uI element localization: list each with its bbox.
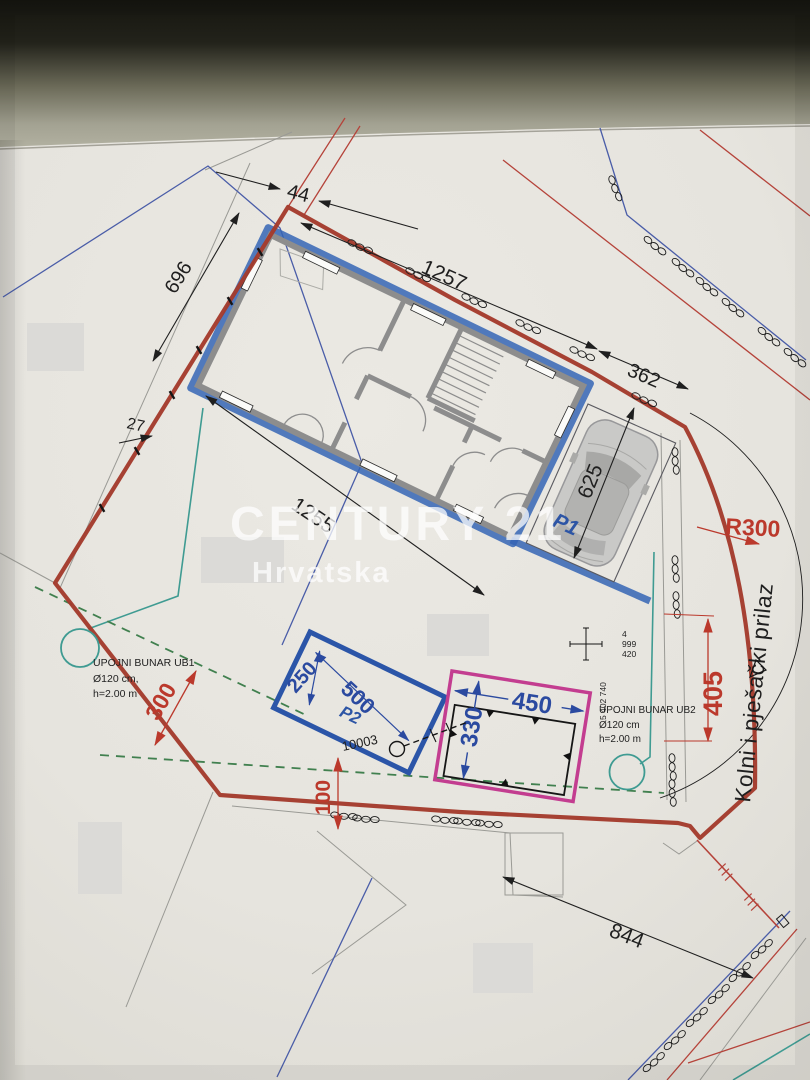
coord-north-2: 999: [622, 639, 636, 649]
dim-r300: R300: [725, 513, 781, 542]
site-plan-photo: 500 250 P2 450 330: [0, 0, 810, 1080]
watermark-region: Hrvatska: [252, 557, 391, 589]
well-ub2-diameter: Ø120 cm: [599, 720, 640, 731]
dim-100: 100: [312, 780, 335, 815]
dim-27: 27: [125, 415, 146, 435]
well-ub1-name: UPOJNI BUNAR UB1: [93, 657, 195, 669]
dim-405: 405: [698, 671, 728, 716]
well-ub2-name: UPOJNI BUNAR UB2: [599, 705, 696, 716]
watermark-brand: CENTURY 21: [230, 498, 566, 551]
well-ub1-depth: h=2.00 m: [93, 688, 137, 700]
coord-north-1: 4: [622, 629, 627, 639]
well-ub1-diameter: Ø120 cm,: [93, 673, 139, 685]
coord-east: 5 402 740: [598, 682, 608, 720]
well-ub2-depth: h=2.00 m: [599, 734, 641, 745]
coord-north-3: 420: [622, 649, 636, 659]
